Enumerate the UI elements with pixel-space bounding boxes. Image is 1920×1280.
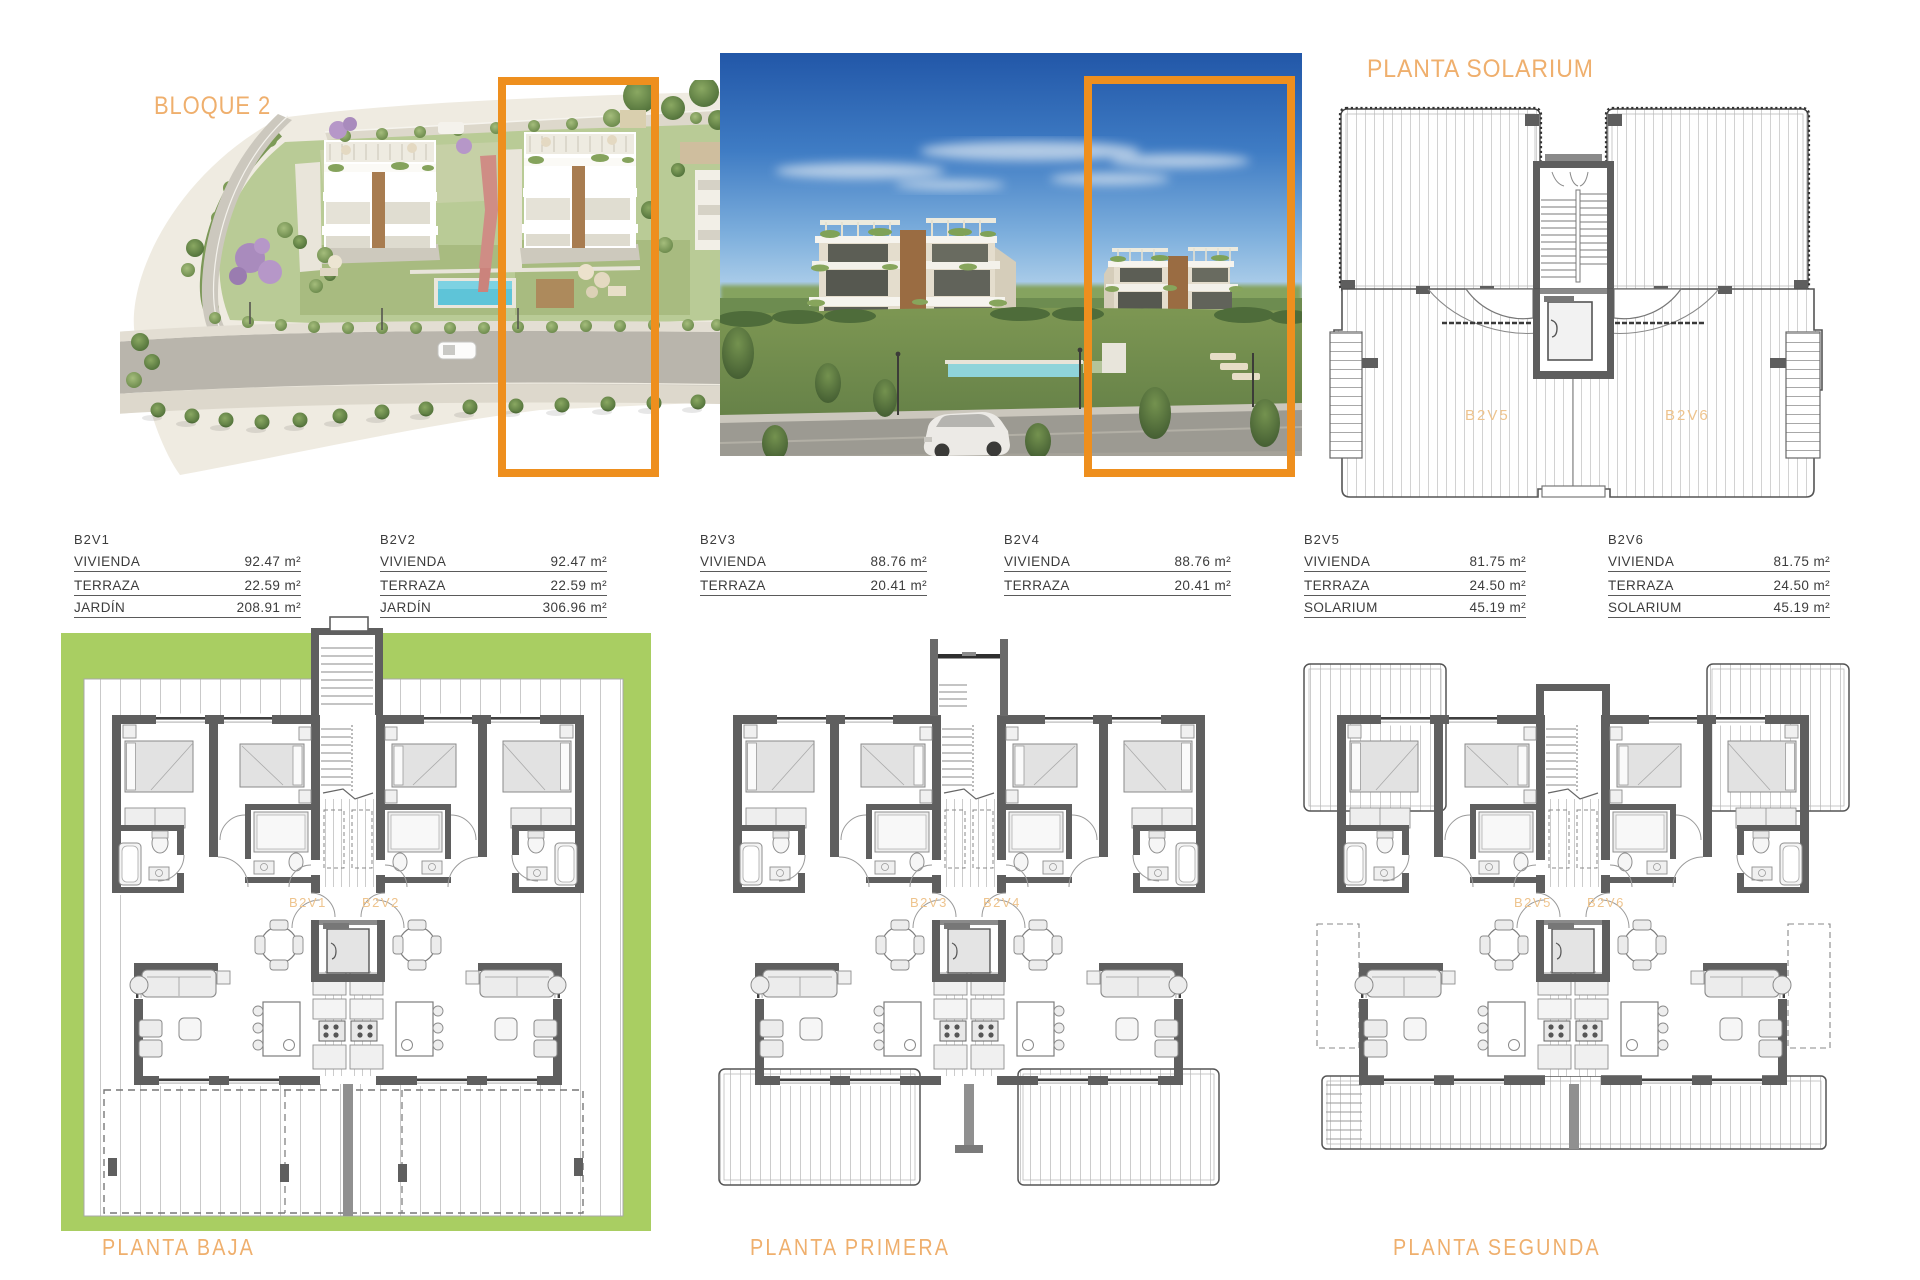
- svg-text:B2V4: B2V4: [983, 895, 1021, 910]
- svg-text:B2V5: B2V5: [1514, 895, 1552, 910]
- svg-text:B2V5: B2V5: [1465, 407, 1510, 424]
- svg-text:B2V2: B2V2: [362, 895, 400, 910]
- svg-text:B2V3: B2V3: [910, 895, 948, 910]
- svg-text:B2V6: B2V6: [1587, 895, 1625, 910]
- svg-text:B2V1: B2V1: [289, 895, 327, 910]
- svg-text:B2V6: B2V6: [1665, 407, 1710, 424]
